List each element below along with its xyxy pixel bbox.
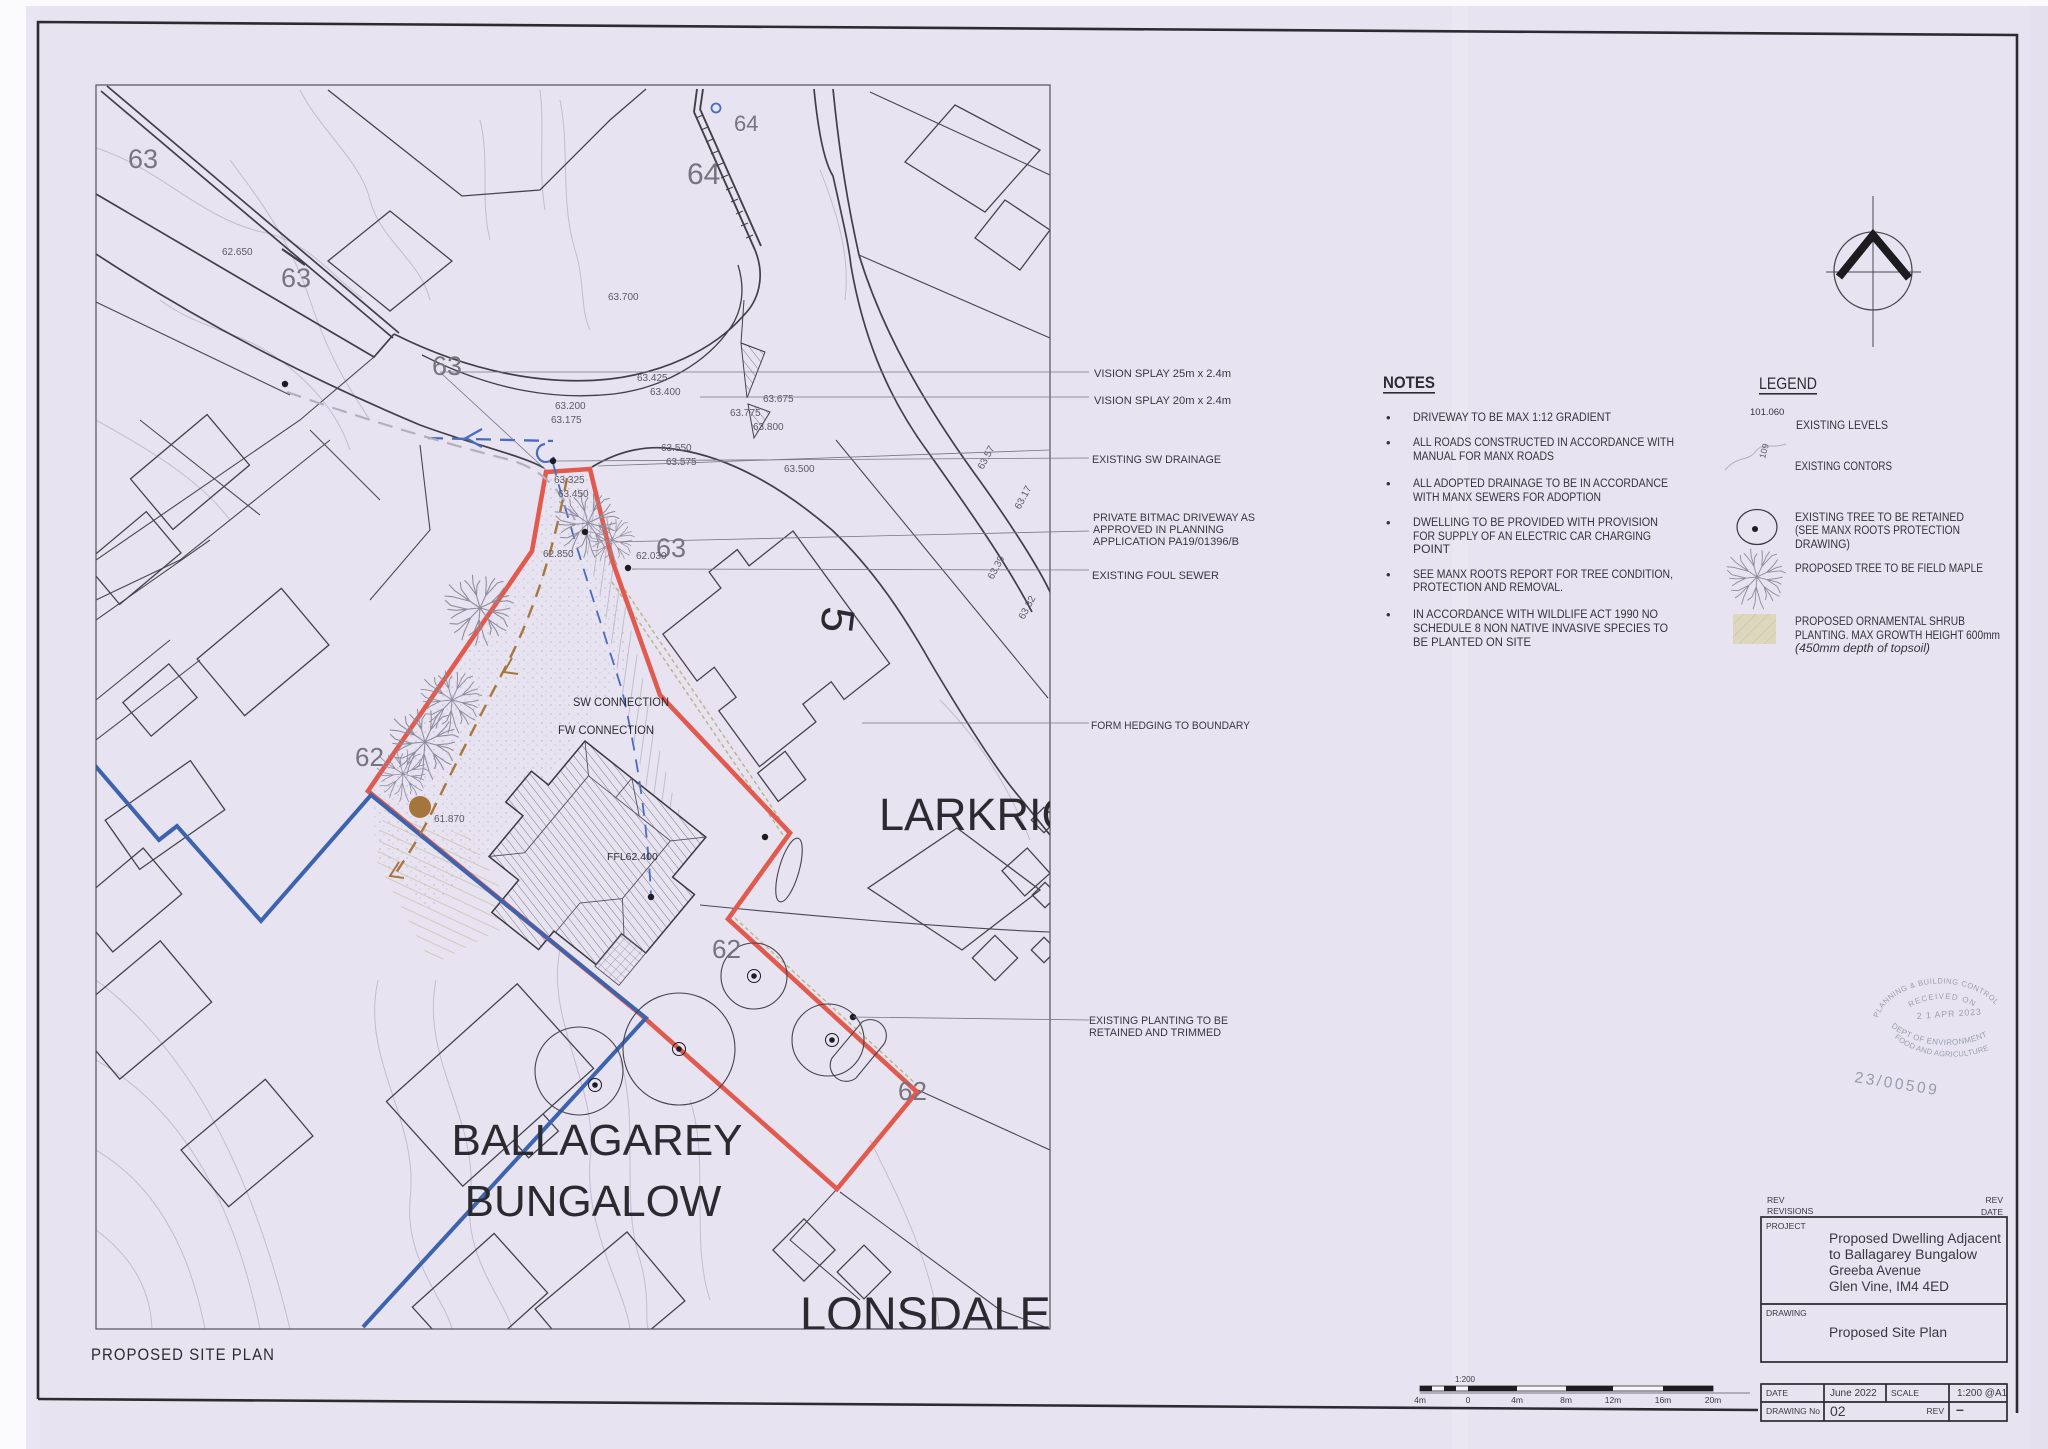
svg-text:Glen Vine, IM4 4ED: Glen Vine, IM4 4ED	[1829, 1279, 1949, 1294]
svg-text:63.450: 63.450	[558, 489, 589, 500]
svg-text:EXISTING FOUL SEWER: EXISTING FOUL SEWER	[1092, 570, 1219, 582]
svg-text:RETAINED AND TRIMMED: RETAINED AND TRIMMED	[1089, 1027, 1221, 1039]
svg-text:63.550: 63.550	[661, 443, 692, 454]
svg-text:62: 62	[898, 1076, 927, 1106]
svg-text:EXISTING CONTORS: EXISTING CONTORS	[1795, 461, 1892, 473]
svg-text:•: •	[1386, 515, 1391, 530]
svg-text:62: 62	[712, 934, 741, 964]
svg-text:62.650: 62.650	[222, 247, 253, 258]
svg-text:Proposed Site Plan: Proposed Site Plan	[1829, 1325, 1947, 1340]
svg-text:EXISTING SW DRAINAGE: EXISTING SW DRAINAGE	[1092, 454, 1221, 466]
svg-text:•: •	[1386, 567, 1391, 582]
svg-text:DRAWING No: DRAWING No	[1766, 1406, 1820, 1416]
svg-text:FFL62.400: FFL62.400	[607, 851, 658, 863]
svg-text:PROPOSED ORNAMENTAL SHRUB: PROPOSED ORNAMENTAL SHRUB	[1795, 616, 1965, 628]
svg-text:EXISTING TREE TO BE RETAINED: EXISTING TREE TO BE RETAINED	[1795, 512, 1964, 524]
svg-text:63.775: 63.775	[730, 408, 761, 419]
svg-text:DRIVEWAY TO BE MAX 1:12 GRADIE: DRIVEWAY TO BE MAX 1:12 GRADIENT	[1413, 410, 1611, 424]
svg-text:PROTECTION AND REMOVAL.: PROTECTION AND REMOVAL.	[1413, 580, 1563, 594]
svg-text:PROPOSED TREE TO BE FIELD MAPL: PROPOSED TREE TO BE FIELD MAPLE	[1795, 563, 1983, 575]
svg-text:4m: 4m	[1414, 1395, 1426, 1405]
svg-text:NOTES: NOTES	[1383, 374, 1435, 392]
svg-text:REV: REV	[1927, 1406, 1945, 1416]
svg-text:LEGEND: LEGEND	[1759, 375, 1817, 393]
svg-text:Proposed Dwelling Adjacent: Proposed Dwelling Adjacent	[1829, 1231, 2001, 1246]
svg-text:DATE: DATE	[1981, 1207, 2003, 1217]
svg-text:16m: 16m	[1655, 1395, 1672, 1405]
svg-text:REVISIONS: REVISIONS	[1767, 1206, 1814, 1216]
svg-text:64: 64	[687, 158, 720, 191]
svg-text:WITH MANX SEWERS FOR ADOPTION: WITH MANX SEWERS FOR ADOPTION	[1413, 490, 1601, 504]
svg-text:64: 64	[734, 111, 758, 136]
svg-text:61.870: 61.870	[434, 814, 465, 825]
svg-text:4m: 4m	[1511, 1395, 1523, 1405]
svg-text:(450mm depth of topsoil): (450mm depth of topsoil)	[1795, 643, 1930, 655]
svg-text:BE PLANTED ON SITE: BE PLANTED ON SITE	[1413, 635, 1531, 649]
svg-text:101.060: 101.060	[1750, 407, 1784, 418]
svg-text:63: 63	[432, 351, 462, 381]
svg-text:BUNGALOW: BUNGALOW	[465, 1177, 722, 1226]
svg-text:62.850: 62.850	[543, 549, 574, 560]
svg-text:POINT: POINT	[1413, 542, 1450, 556]
svg-text:8m: 8m	[1560, 1395, 1572, 1405]
svg-text:DRAWING): DRAWING)	[1795, 539, 1850, 551]
svg-text:FORM HEDGING TO BOUNDARY: FORM HEDGING TO BOUNDARY	[1091, 720, 1251, 732]
svg-text:SCHEDULE 8 NON NATIVE INVASIVE: SCHEDULE 8 NON NATIVE INVASIVE SPECIES T…	[1413, 621, 1668, 635]
svg-text:1:200: 1:200	[1455, 1375, 1476, 1384]
svg-text:FW CONNECTION: FW CONNECTION	[558, 725, 654, 737]
svg-text:63.800: 63.800	[753, 422, 784, 433]
svg-text:VISION SPLAY 20m x 2.4m: VISION SPLAY 20m x 2.4m	[1094, 395, 1231, 407]
svg-text:PROPOSED SITE PLAN: PROPOSED SITE PLAN	[91, 1345, 275, 1364]
svg-text:DATE: DATE	[1766, 1388, 1788, 1398]
svg-text:PROJECT: PROJECT	[1766, 1221, 1806, 1231]
svg-text:•: •	[1386, 607, 1391, 622]
svg-text:EXISTING LEVELS: EXISTING LEVELS	[1796, 420, 1888, 432]
svg-text:63: 63	[281, 263, 311, 293]
svg-text:to Ballagarey Bungalow: to Ballagarey Bungalow	[1829, 1247, 1977, 1262]
svg-text:63.325: 63.325	[554, 475, 585, 486]
svg-text:•: •	[1386, 435, 1391, 450]
svg-text:•: •	[1386, 476, 1391, 491]
svg-text:62.030: 62.030	[636, 551, 667, 562]
svg-text:MANUAL FOR MANX ROADS: MANUAL FOR MANX ROADS	[1413, 449, 1554, 463]
svg-text:Greeba Avenue: Greeba Avenue	[1829, 1263, 1921, 1278]
svg-text:(SEE MANX ROOTS PROTECTION: (SEE MANX ROOTS PROTECTION	[1795, 525, 1960, 537]
svg-text:63.175: 63.175	[551, 415, 582, 426]
svg-text:DRAWING: DRAWING	[1766, 1308, 1807, 1318]
svg-text:ALL ROADS CONSTRUCTED IN ACCOR: ALL ROADS CONSTRUCTED IN ACCORDANCE WITH	[1413, 435, 1674, 449]
svg-text:PRIVATE BITMAC DRIVEWAY AS: PRIVATE BITMAC DRIVEWAY AS	[1093, 512, 1255, 524]
svg-text:IN ACCORDANCE WITH WILDLIFE AC: IN ACCORDANCE WITH WILDLIFE ACT 1990 NO	[1413, 607, 1658, 621]
svg-text:EXISTING PLANTING TO BE: EXISTING PLANTING TO BE	[1089, 1015, 1228, 1027]
svg-text:63.500: 63.500	[784, 464, 815, 475]
svg-text:DWELLING TO BE PROVIDED WITH P: DWELLING TO BE PROVIDED WITH PROVISION	[1413, 515, 1658, 529]
svg-text:APPLICATION PA19/01396/B: APPLICATION PA19/01396/B	[1093, 536, 1239, 548]
svg-text:20m: 20m	[1705, 1395, 1722, 1405]
svg-text:VISION SPLAY 25m x 2.4m: VISION SPLAY 25m x 2.4m	[1094, 368, 1231, 380]
svg-text:63.700: 63.700	[608, 292, 639, 303]
svg-text:0: 0	[1466, 1395, 1471, 1405]
svg-text:LARKRIG: LARKRIG	[879, 789, 1077, 840]
svg-text:June 2022: June 2022	[1830, 1388, 1877, 1399]
svg-text:PLANTING. MAX GROWTH HEIGHT 60: PLANTING. MAX GROWTH HEIGHT 600mm	[1795, 630, 2000, 642]
svg-text:1:200 @A1: 1:200 @A1	[1957, 1388, 2008, 1399]
svg-text:REV: REV	[1767, 1195, 1785, 1205]
svg-text:FOR SUPPLY OF AN ELECTRIC CAR: FOR SUPPLY OF AN ELECTRIC CAR CHARGING	[1413, 529, 1651, 543]
svg-text:REV: REV	[1986, 1195, 2004, 1205]
svg-text:63.425: 63.425	[637, 373, 668, 384]
svg-text:SCALE: SCALE	[1891, 1388, 1919, 1398]
svg-text:SW CONNECTION: SW CONNECTION	[573, 697, 669, 709]
svg-text:12m: 12m	[1605, 1395, 1622, 1405]
svg-text:ALL ADOPTED DRAINAGE TO BE IN: ALL ADOPTED DRAINAGE TO BE IN ACCORDANCE	[1413, 476, 1668, 490]
svg-text:02: 02	[1830, 1403, 1846, 1419]
svg-text:APPROVED IN PLANNING: APPROVED IN PLANNING	[1093, 524, 1224, 536]
svg-text:63.675: 63.675	[763, 394, 794, 405]
svg-text:63: 63	[128, 144, 158, 174]
svg-text:62: 62	[355, 742, 384, 772]
svg-text:•: •	[1386, 410, 1391, 425]
svg-text:63.200: 63.200	[555, 401, 586, 412]
svg-text:SEE MANX ROOTS REPORT FOR TREE: SEE MANX ROOTS REPORT FOR TREE CONDITION…	[1413, 567, 1673, 581]
svg-text:63.400: 63.400	[650, 387, 681, 398]
svg-text:BALLAGAREY: BALLAGAREY	[451, 1116, 742, 1165]
svg-text:–: –	[1956, 1401, 1964, 1417]
